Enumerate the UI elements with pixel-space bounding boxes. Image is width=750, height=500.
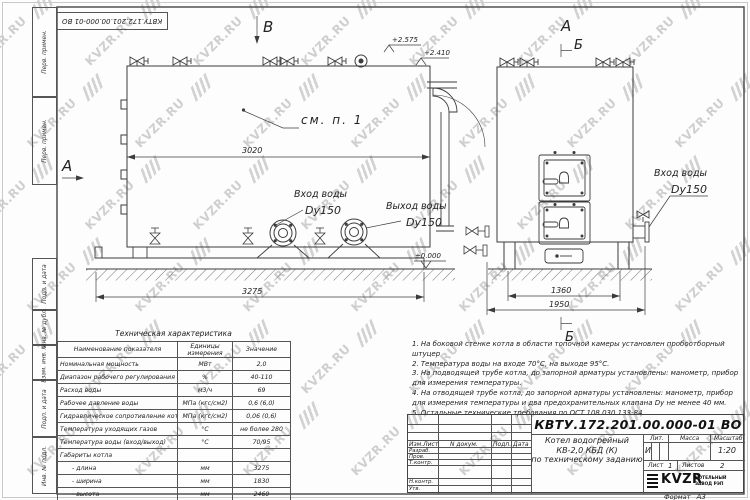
side-elev-zero: ±0.000	[415, 252, 441, 260]
tb-row-tkontr: Т.контр.	[409, 460, 432, 466]
side-dim-total: 3275	[242, 287, 262, 296]
ground-hatch-left	[86, 269, 455, 281]
kvzr-logo-subtitle: КОТЕЛЬНЫЙ ЗАВОД РЭП	[695, 476, 727, 487]
spec-table: Наименование показателя Единицы измерени…	[57, 341, 291, 500]
table-row: - ширинамм1830	[58, 475, 291, 488]
front-dim-legs: 1360	[551, 286, 571, 295]
table-row: - высотамм2460	[58, 488, 291, 500]
margin-cell-vzam-inv: Взам. инв. №	[32, 345, 57, 380]
margin-cell-podp-data-2: Подп. и дата	[32, 380, 57, 437]
title-block: Изм.Лист N докум. Подп. Дата Разраб. Про…	[407, 414, 744, 493]
table-row: Диапазон рабочего регулирования%40-110	[58, 371, 291, 384]
table-row: Температура уходящих газов°Сне более 280	[58, 423, 291, 436]
note-line: 3. На подводящей трубе котла, до запорно…	[412, 369, 746, 389]
tb-row-nkontr: Н.контр.	[409, 479, 433, 485]
top-valve-icons	[130, 57, 346, 66]
margin-cell-inv-dubl: Инв. № дубл.	[32, 310, 57, 345]
upper-furnace-door	[539, 151, 590, 201]
drawing-sheet: KVZR.RUKVZR.RUKVZR.RUKVZR.RUKVZR.RUKVZR.…	[0, 0, 750, 500]
side-inlet-dn: Dy150	[305, 204, 341, 217]
outlet-flange	[341, 219, 367, 245]
side-outlet-label: Выход воды	[386, 201, 447, 212]
side-elev-mid: +2.410	[424, 49, 450, 57]
tb-scale-header: Масштаб	[714, 435, 743, 442]
front-inlet-flange	[633, 211, 649, 242]
tb-row-utv: Утв.	[409, 486, 420, 492]
note-line: 4. На отводящей трубе котла, до запорной…	[412, 389, 746, 409]
tb-mass-header: Масса	[680, 435, 699, 442]
format-value: А3	[697, 493, 706, 500]
drain-valve-icons	[150, 228, 325, 244]
tb-col-ndocum: N докум.	[450, 441, 478, 448]
top-stamp-text: КВТУ.172.201.00.000-01 ВО	[62, 17, 162, 25]
table-row: Температура воды (вход/выход)°С70/95	[58, 436, 291, 449]
table-row: Рабочее давление водыМПа (кгс/см2)0,6 (6…	[58, 397, 291, 410]
boiler-side-view	[86, 55, 485, 281]
margin-cell-perv-primen-2: Перв. примен.	[32, 97, 57, 185]
table-row: Расход водым3/ч69	[58, 384, 291, 397]
kvzr-coil-icon	[647, 474, 658, 489]
table-row: Габариты котла	[58, 449, 291, 462]
tb-lit-value: И	[645, 446, 651, 455]
side-callout: см. п. 1	[301, 113, 363, 127]
ground-hatch-right	[488, 269, 652, 281]
tb-sheet-value: 1	[668, 462, 672, 470]
side-inlet-label: Вход воды	[294, 189, 348, 200]
margin-cell-inv-podl: Инв. № подл.	[32, 437, 57, 494]
drawing-name: Котел водогрейный КВ-2,0 КБД (К) по техн…	[531, 436, 643, 465]
ash-hatch	[545, 249, 583, 263]
spec-header-row: Наименование показателя Единицы измерени…	[58, 342, 291, 358]
margin-cell-podp-data-1: Подп. и дата	[32, 258, 57, 310]
table-row: Номинальная мощностьМВт2,0	[58, 358, 291, 371]
side-outlet-dn: Dy150	[406, 216, 442, 229]
side-elev-top: +2.575	[392, 36, 418, 44]
note-line: 2. Температура воды на входе 70°С, на вы…	[412, 360, 746, 370]
format-label: Формат А3	[664, 493, 706, 500]
tb-col-podp: Подп.	[493, 441, 511, 448]
inlet-flange	[270, 220, 296, 246]
boiler-front-view	[464, 58, 652, 281]
side-section-label: А	[61, 157, 72, 175]
left-fittings	[464, 226, 489, 256]
technical-notes: 1. На боковой стенке котла в области топ…	[412, 340, 746, 418]
note-line: 1. На боковой стенке котла в области топ…	[412, 340, 746, 360]
vent-circle-icon	[355, 55, 367, 67]
table-row: - длинамм3275	[58, 462, 291, 475]
spec-table-title: Техническая характеристика	[57, 329, 290, 338]
tb-col-data: Дата	[513, 441, 529, 448]
table-row: Гидравлическое сопротивление котлаМПа (к…	[58, 410, 291, 423]
top-stamp: КВТУ.172.201.00.000-01 ВО	[56, 12, 168, 30]
tb-sheets-value: 2	[720, 462, 724, 470]
front-label-a: А	[560, 17, 571, 35]
front-inlet-label: Вход воды	[654, 168, 708, 179]
front-dim-total: 1950	[549, 300, 569, 309]
lower-furnace-door	[539, 202, 590, 244]
tb-lit-header: Лит.	[650, 435, 664, 442]
side-view-dimensions	[62, 16, 449, 302]
side-dim-body: 3020	[242, 146, 262, 155]
side-viewB-label: В	[263, 18, 273, 36]
skid-frame	[95, 244, 424, 269]
tb-sheets-label: Листов	[682, 462, 704, 469]
margin-cell-perv-primen-1: Перв. примен.	[32, 7, 57, 97]
drawing-designation: КВТУ.172.201.00.000-01 ВО	[531, 415, 745, 434]
front-label-b-top: Б	[574, 38, 583, 53]
front-inlet-dn: Dy150	[671, 183, 707, 196]
tb-scale-value: 1:20	[718, 446, 736, 455]
front-top-valves	[500, 58, 634, 67]
tb-sheet-label: Лист	[648, 462, 663, 469]
